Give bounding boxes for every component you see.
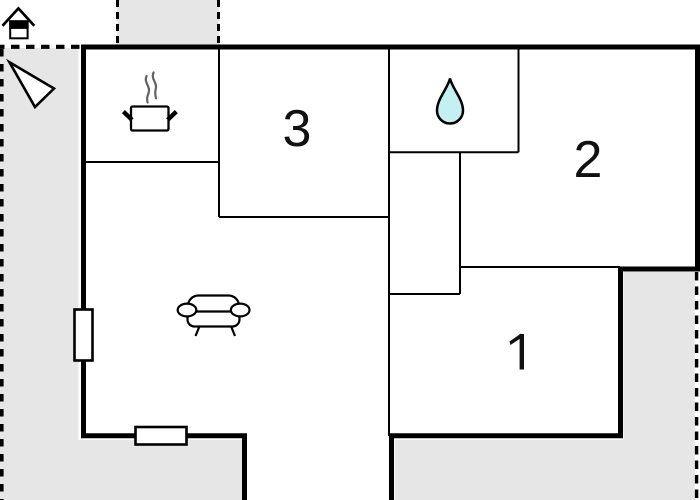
svg-text:2: 2 bbox=[574, 131, 603, 189]
svg-text:3: 3 bbox=[283, 100, 312, 158]
